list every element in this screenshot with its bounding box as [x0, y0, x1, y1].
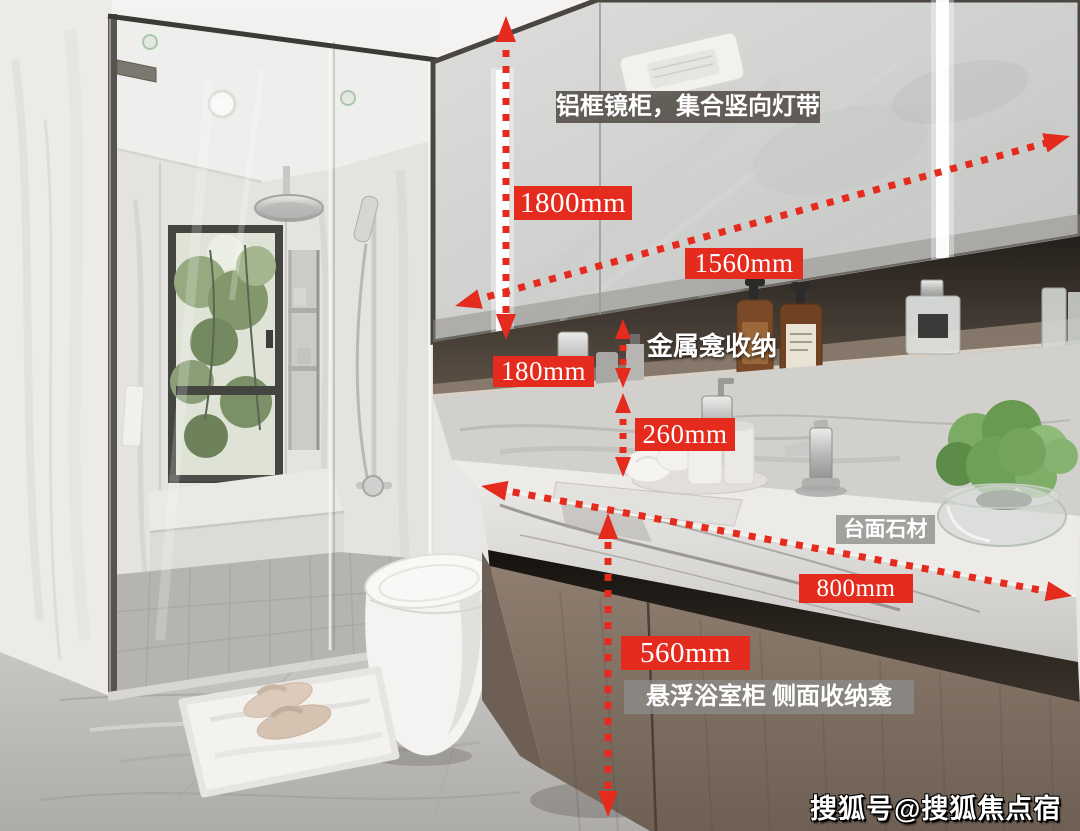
bathroom-photo: [0, 0, 1080, 831]
screenshot: 铝框镜柜，集合竖向灯带 1800mm 1560mm 金属龛收纳 180mm 26…: [0, 0, 1080, 831]
left-wall: [0, 0, 112, 697]
